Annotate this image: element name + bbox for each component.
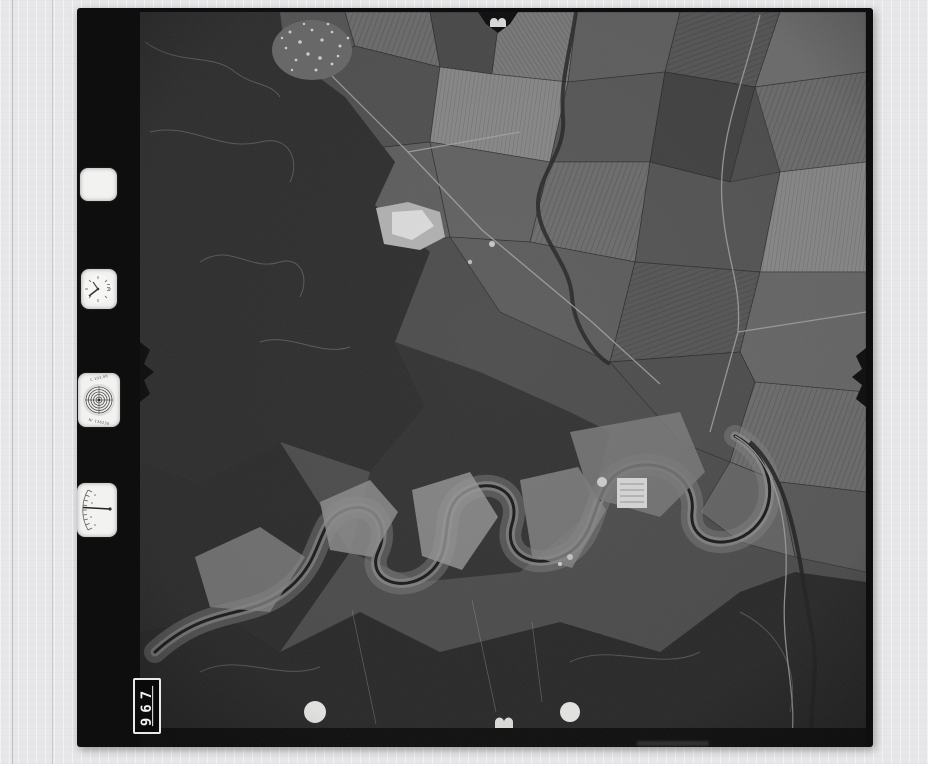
scanner-guide-line xyxy=(52,0,53,764)
frame-number: 967 xyxy=(139,686,155,726)
level-gauge-icon xyxy=(77,483,117,537)
scanner-bed: C 103.06 Nr 136230 xyxy=(0,0,928,764)
clock-dial-icon xyxy=(81,269,117,309)
edge-marking-smudge xyxy=(637,741,709,746)
altimeter-dial-icon: C 103.06 Nr 136230 xyxy=(78,373,120,427)
frame-number-box: 967 xyxy=(133,678,161,734)
scanner-guide-line xyxy=(12,0,13,764)
data-strip-blank-window xyxy=(80,168,117,201)
aerial-photo xyxy=(140,12,866,747)
film-frame: C 103.06 Nr 136230 xyxy=(77,8,873,747)
